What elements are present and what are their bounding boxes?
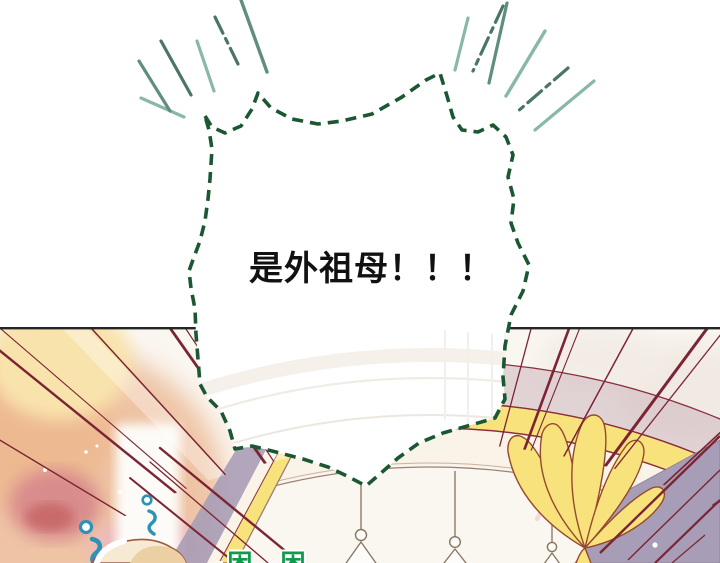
emphasis-lines-right — [455, 3, 594, 130]
bubble-text: 是外祖母！！！ — [249, 251, 494, 288]
sfx-text: -困 -困 — [214, 544, 308, 563]
comic-panel: 是外祖母！！！ -困 -困 — [0, 0, 720, 563]
emphasis-lines-left — [139, 0, 267, 117]
